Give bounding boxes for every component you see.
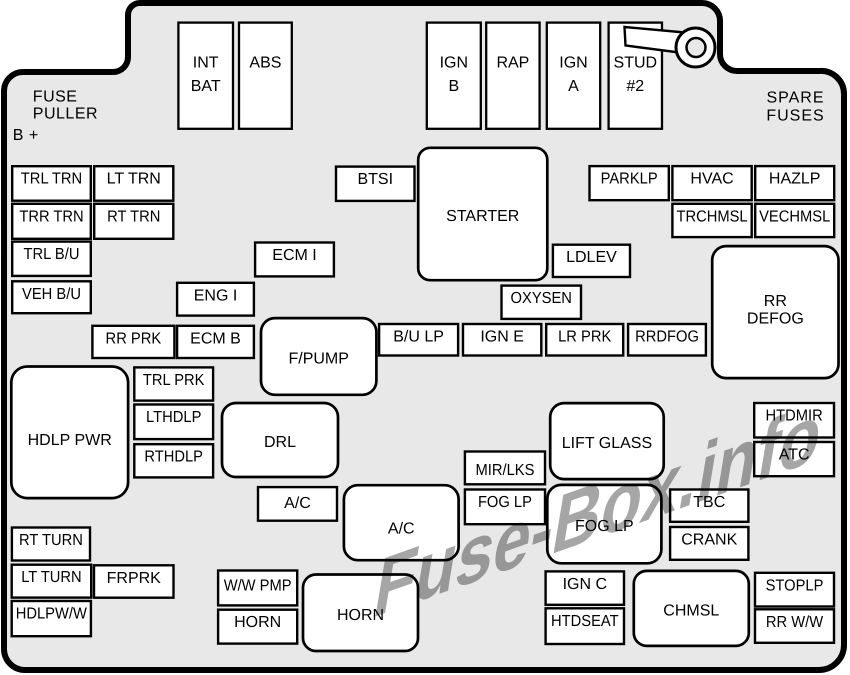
- svg-text:DRL: DRL: [264, 434, 296, 451]
- svg-text:HAZLP: HAZLP: [769, 171, 821, 188]
- svg-text:ENG I: ENG I: [194, 287, 238, 304]
- svg-text:HTDSEAT: HTDSEAT: [551, 613, 619, 630]
- svg-text:STUD: STUD: [614, 55, 658, 72]
- svg-text:OXYSEN: OXYSEN: [511, 290, 572, 307]
- svg-text:HVAC: HVAC: [690, 171, 733, 188]
- svg-text:LDLEV: LDLEV: [566, 249, 617, 266]
- svg-text:IGN C: IGN C: [563, 576, 607, 593]
- svg-text:ABS: ABS: [249, 55, 281, 72]
- svg-text:RAP: RAP: [496, 55, 529, 72]
- svg-text:W/W PMP: W/W PMP: [224, 578, 292, 595]
- svg-text:IGN: IGN: [559, 55, 587, 72]
- svg-text:B/U LP: B/U LP: [393, 329, 444, 346]
- svg-text:IGN E: IGN E: [480, 329, 524, 346]
- svg-text:FUSE: FUSE: [33, 88, 78, 105]
- svg-text:LT TRN: LT TRN: [107, 171, 161, 188]
- svg-text:LTHDLP: LTHDLP: [146, 409, 201, 426]
- svg-text:TRCHMSL: TRCHMSL: [677, 208, 748, 225]
- svg-text:IGN: IGN: [440, 55, 468, 72]
- svg-text:RR: RR: [764, 293, 787, 310]
- svg-text:RR PRK: RR PRK: [106, 330, 162, 347]
- svg-text:HDLPW/W: HDLPW/W: [16, 606, 88, 623]
- svg-text:HDLP PWR: HDLP PWR: [28, 432, 112, 449]
- svg-text:A/C: A/C: [284, 495, 311, 512]
- svg-text:TRL PRK: TRL PRK: [143, 372, 205, 389]
- svg-text:CRANK: CRANK: [681, 532, 737, 549]
- svg-text:INT: INT: [193, 55, 219, 72]
- svg-text:BTSI: BTSI: [357, 171, 393, 188]
- svg-text:VEH B/U: VEH B/U: [22, 286, 81, 303]
- svg-text:VECHMSL: VECHMSL: [759, 208, 830, 225]
- svg-text:PULLER: PULLER: [33, 105, 98, 122]
- svg-text:LR PRK: LR PRK: [558, 329, 612, 346]
- svg-text:RRDFOG: RRDFOG: [635, 329, 699, 346]
- svg-text:SPARE: SPARE: [766, 89, 824, 106]
- svg-text:FUSES: FUSES: [766, 108, 824, 125]
- svg-text:A: A: [568, 78, 579, 95]
- svg-text:LIFT GLASS: LIFT GLASS: [562, 435, 652, 452]
- svg-text:ECM B: ECM B: [190, 330, 241, 347]
- svg-text:B +: B +: [13, 127, 39, 144]
- svg-text:RT TURN: RT TURN: [19, 532, 83, 549]
- svg-text:PARKLP: PARKLP: [601, 171, 658, 188]
- svg-text:#2: #2: [626, 78, 644, 95]
- svg-text:LT TURN: LT TURN: [21, 569, 82, 586]
- svg-text:MIR/LKS: MIR/LKS: [476, 462, 535, 479]
- svg-text:FRPRK: FRPRK: [107, 570, 162, 587]
- svg-text:RT TRN: RT TRN: [107, 208, 160, 225]
- svg-text:F/PUMP: F/PUMP: [288, 350, 348, 367]
- svg-text:STOPLP: STOPLP: [766, 577, 824, 594]
- svg-text:DEFOG: DEFOG: [747, 310, 804, 327]
- svg-text:HORN: HORN: [234, 614, 281, 631]
- svg-text:ECM I: ECM I: [272, 247, 316, 264]
- svg-text:CHMSL: CHMSL: [663, 602, 719, 619]
- svg-text:TRR TRN: TRR TRN: [19, 208, 83, 225]
- svg-text:RR W/W: RR W/W: [766, 614, 824, 631]
- svg-text:TRL B/U: TRL B/U: [24, 246, 80, 263]
- svg-text:TRL TRN: TRL TRN: [21, 171, 82, 188]
- svg-text:RTHDLP: RTHDLP: [144, 449, 203, 466]
- svg-text:STARTER: STARTER: [446, 208, 519, 225]
- svg-text:B: B: [448, 78, 459, 95]
- svg-text:BAT: BAT: [191, 78, 221, 95]
